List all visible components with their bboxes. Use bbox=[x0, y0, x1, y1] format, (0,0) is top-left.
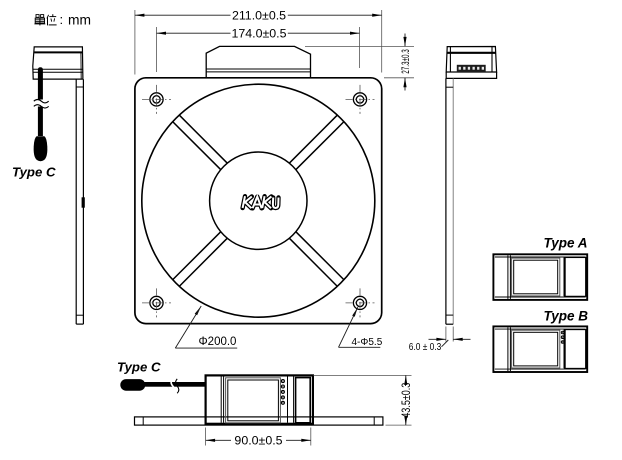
svg-text:4-Φ5.5: 4-Φ5.5 bbox=[352, 337, 383, 348]
svg-text:174.0±0.5: 174.0±0.5 bbox=[231, 27, 286, 41]
svg-text:6.0 ± 0.3: 6.0 ± 0.3 bbox=[409, 341, 442, 353]
svg-text:Φ200.0: Φ200.0 bbox=[199, 336, 237, 348]
svg-text:90.0±0.5: 90.0±0.5 bbox=[234, 433, 282, 447]
svg-text:mm: mm bbox=[68, 13, 91, 28]
svg-text::: : bbox=[60, 12, 64, 27]
svg-text:Type C: Type C bbox=[117, 359, 161, 374]
svg-text:211.0±0.5: 211.0±0.5 bbox=[232, 9, 286, 23]
svg-text:Type C: Type C bbox=[12, 165, 56, 180]
svg-text:27.3±0.3: 27.3±0.3 bbox=[400, 49, 412, 74]
svg-text:43.5±0.3: 43.5±0.3 bbox=[401, 383, 413, 418]
svg-text:Type A: Type A bbox=[543, 235, 587, 250]
svg-text:Type B: Type B bbox=[543, 308, 588, 323]
